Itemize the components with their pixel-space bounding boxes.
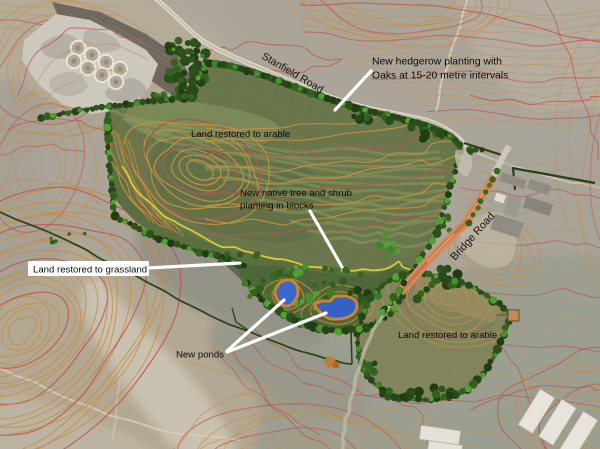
svg-text:New ponds: New ponds <box>176 350 224 361</box>
svg-text:Oaks at 15-20 metre intervals: Oaks at 15-20 metre intervals <box>372 70 508 81</box>
svg-text:Land restored to grassland: Land restored to grassland <box>33 265 147 276</box>
svg-text:planting in blocks: planting in blocks <box>240 201 314 212</box>
svg-text:New native tree and shrub: New native tree and shrub <box>240 188 352 199</box>
svg-text:Land restored to arable: Land restored to arable <box>398 330 497 341</box>
svg-text:Land restored to arable: Land restored to arable <box>191 129 290 140</box>
svg-text:New hedgerow planting with: New hedgerow planting with <box>372 57 502 68</box>
